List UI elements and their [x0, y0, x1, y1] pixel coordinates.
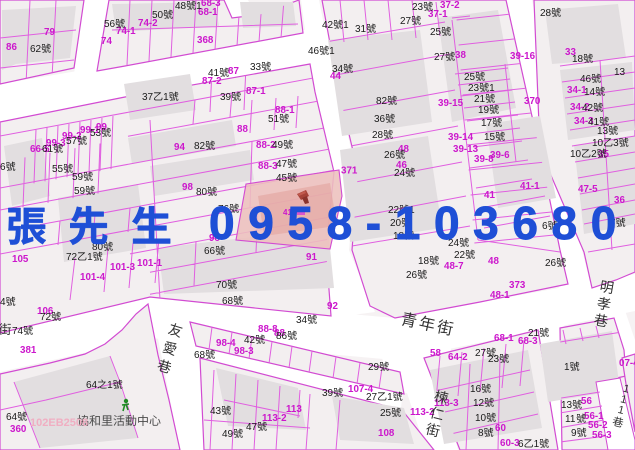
svg-text:25: 25 [430, 27, 442, 38]
svg-text:33: 33 [250, 62, 262, 73]
svg-text:64-2: 64-2 [448, 352, 468, 363]
svg-text:58: 58 [430, 348, 441, 359]
svg-text:27: 27 [475, 348, 487, 359]
svg-text:86: 86 [6, 42, 17, 53]
svg-text:42: 42 [322, 20, 334, 31]
svg-text:360: 360 [10, 424, 27, 435]
svg-text:14: 14 [584, 87, 596, 98]
svg-text:92: 92 [327, 301, 338, 312]
svg-text:50: 50 [152, 10, 164, 21]
svg-text:68: 68 [194, 350, 206, 361]
svg-text:13: 13 [614, 67, 626, 78]
svg-text:25: 25 [380, 408, 392, 419]
svg-text:48: 48 [488, 256, 499, 267]
svg-text:37: 37 [142, 92, 154, 103]
svg-text:37-1: 37-1 [428, 9, 448, 20]
svg-text:86: 86 [276, 331, 288, 342]
svg-text:381: 381 [20, 345, 37, 356]
svg-text:72: 72 [40, 312, 52, 323]
svg-text:15: 15 [484, 132, 496, 143]
svg-text:62: 62 [30, 44, 42, 55]
svg-text:72: 72 [66, 252, 78, 263]
svg-text:07-4: 07-4 [619, 358, 635, 369]
svg-text:48-1: 48-1 [490, 290, 510, 301]
svg-text:13: 13 [561, 400, 573, 411]
svg-text:36: 36 [374, 114, 386, 125]
svg-text:1: 1 [107, 380, 113, 391]
svg-text:82: 82 [376, 96, 388, 107]
svg-text:31: 31 [355, 24, 367, 35]
svg-text:28: 28 [372, 130, 384, 141]
svg-text:39-6: 39-6 [490, 150, 510, 161]
svg-text:8: 8 [478, 428, 484, 439]
svg-text:98: 98 [182, 182, 193, 193]
svg-text:94: 94 [174, 142, 185, 153]
svg-text:1: 1 [196, 1, 202, 12]
svg-text:2: 2 [591, 149, 597, 160]
svg-text:26: 26 [406, 270, 418, 281]
svg-text:11: 11 [565, 414, 576, 425]
svg-text:39: 39 [220, 92, 232, 103]
svg-text:74: 74 [101, 36, 112, 47]
svg-text:370: 370 [524, 96, 541, 107]
svg-text:4: 4 [0, 297, 6, 308]
svg-text:19: 19 [478, 105, 490, 116]
svg-text:27: 27 [434, 52, 446, 63]
svg-text:27: 27 [400, 16, 412, 27]
svg-text:91: 91 [306, 252, 317, 263]
svg-text:34: 34 [332, 64, 344, 75]
svg-text:82: 82 [194, 141, 206, 152]
svg-text:74: 74 [12, 326, 24, 337]
svg-text:13: 13 [597, 126, 609, 137]
svg-text:25: 25 [464, 72, 476, 83]
svg-text:3: 3 [613, 138, 619, 149]
svg-text:101-4: 101-4 [80, 272, 106, 283]
svg-text:49: 49 [272, 140, 284, 151]
svg-text:39: 39 [322, 388, 334, 399]
svg-text:57: 57 [66, 136, 78, 147]
svg-text:59: 59 [74, 186, 86, 197]
svg-text:48-7: 48-7 [444, 261, 464, 272]
svg-text:23: 23 [468, 83, 480, 94]
svg-text:34: 34 [296, 315, 308, 326]
svg-text:6: 6 [0, 162, 6, 173]
svg-text:43: 43 [210, 406, 222, 417]
svg-text:113: 113 [286, 404, 302, 415]
svg-text:80: 80 [196, 187, 208, 198]
svg-text:29: 29 [368, 362, 380, 373]
svg-text:101-1: 101-1 [137, 258, 163, 269]
svg-text:21: 21 [528, 328, 540, 339]
svg-text:39-14: 39-14 [448, 132, 474, 143]
svg-text:47-5: 47-5 [578, 184, 598, 195]
svg-text:41-1: 41-1 [520, 181, 540, 192]
svg-text:10: 10 [592, 138, 604, 149]
svg-text:28: 28 [540, 8, 552, 19]
svg-text:26: 26 [545, 258, 557, 269]
svg-text:105: 105 [12, 254, 29, 265]
svg-text:368: 368 [197, 35, 214, 46]
svg-text:39-15: 39-15 [438, 98, 464, 109]
svg-text:64: 64 [86, 380, 98, 391]
svg-text:87-1: 87-1 [246, 86, 266, 97]
svg-text:12: 12 [473, 398, 485, 409]
svg-text:39-16: 39-16 [510, 51, 536, 62]
svg-text:1: 1 [87, 252, 93, 263]
svg-text:27: 27 [366, 392, 378, 403]
svg-text:68: 68 [222, 296, 234, 307]
svg-text:10: 10 [475, 413, 487, 424]
svg-text:45: 45 [276, 173, 288, 184]
svg-text:46: 46 [580, 74, 592, 85]
svg-text:51: 51 [268, 114, 280, 125]
svg-text:88: 88 [237, 124, 248, 135]
svg-text:108: 108 [378, 428, 395, 439]
svg-text:49: 49 [222, 429, 234, 440]
svg-text:41: 41 [208, 68, 220, 79]
svg-text:87: 87 [228, 66, 239, 77]
svg-text:61: 61 [42, 144, 54, 155]
svg-text:42: 42 [244, 335, 256, 346]
svg-text:26: 26 [384, 150, 396, 161]
svg-text:56: 56 [581, 396, 592, 407]
svg-text:53: 53 [90, 128, 102, 139]
svg-text:9: 9 [571, 428, 577, 439]
svg-text:1: 1 [387, 392, 393, 403]
svg-text:371: 371 [341, 166, 358, 177]
svg-text:68-1: 68-1 [494, 333, 514, 344]
svg-text:42: 42 [582, 103, 594, 114]
svg-text:56: 56 [104, 19, 116, 30]
svg-text:79: 79 [44, 27, 55, 38]
svg-text:70: 70 [216, 280, 228, 291]
svg-text:47: 47 [276, 159, 288, 170]
svg-text:1: 1 [343, 20, 349, 31]
svg-text:21: 21 [474, 94, 486, 105]
svg-text:113-2: 113-2 [410, 407, 435, 418]
svg-text:17: 17 [481, 118, 493, 129]
svg-text:46: 46 [308, 46, 320, 57]
svg-text:1: 1 [163, 92, 169, 103]
svg-text:0958-103680: 0958-103680 [209, 197, 630, 249]
svg-text:64: 64 [6, 412, 18, 423]
svg-text:1: 1 [564, 362, 570, 373]
svg-text:56-3: 56-3 [592, 430, 612, 441]
svg-text:373: 373 [509, 280, 526, 291]
svg-text:23: 23 [412, 2, 424, 13]
svg-text:98-3: 98-3 [234, 346, 254, 357]
svg-text:6: 6 [518, 439, 524, 450]
svg-text:18: 18 [418, 256, 430, 267]
svg-text:1: 1 [489, 83, 495, 94]
svg-text:59: 59 [72, 172, 84, 183]
svg-text:101-3: 101-3 [110, 262, 136, 273]
svg-text:1: 1 [534, 439, 540, 450]
svg-text:55: 55 [52, 164, 64, 175]
svg-text:22: 22 [454, 250, 466, 261]
svg-text:16: 16 [470, 384, 482, 395]
svg-text:38: 38 [455, 50, 466, 61]
svg-text:23: 23 [488, 354, 500, 365]
svg-text:24: 24 [394, 168, 406, 179]
svg-text:18: 18 [572, 54, 584, 65]
svg-text:1: 1 [329, 46, 335, 57]
svg-text:102EB2508: 102EB2508 [30, 417, 88, 429]
svg-text:47: 47 [246, 422, 258, 433]
svg-text:10: 10 [570, 149, 582, 160]
svg-text:60: 60 [495, 423, 506, 434]
svg-text:48: 48 [175, 1, 187, 12]
